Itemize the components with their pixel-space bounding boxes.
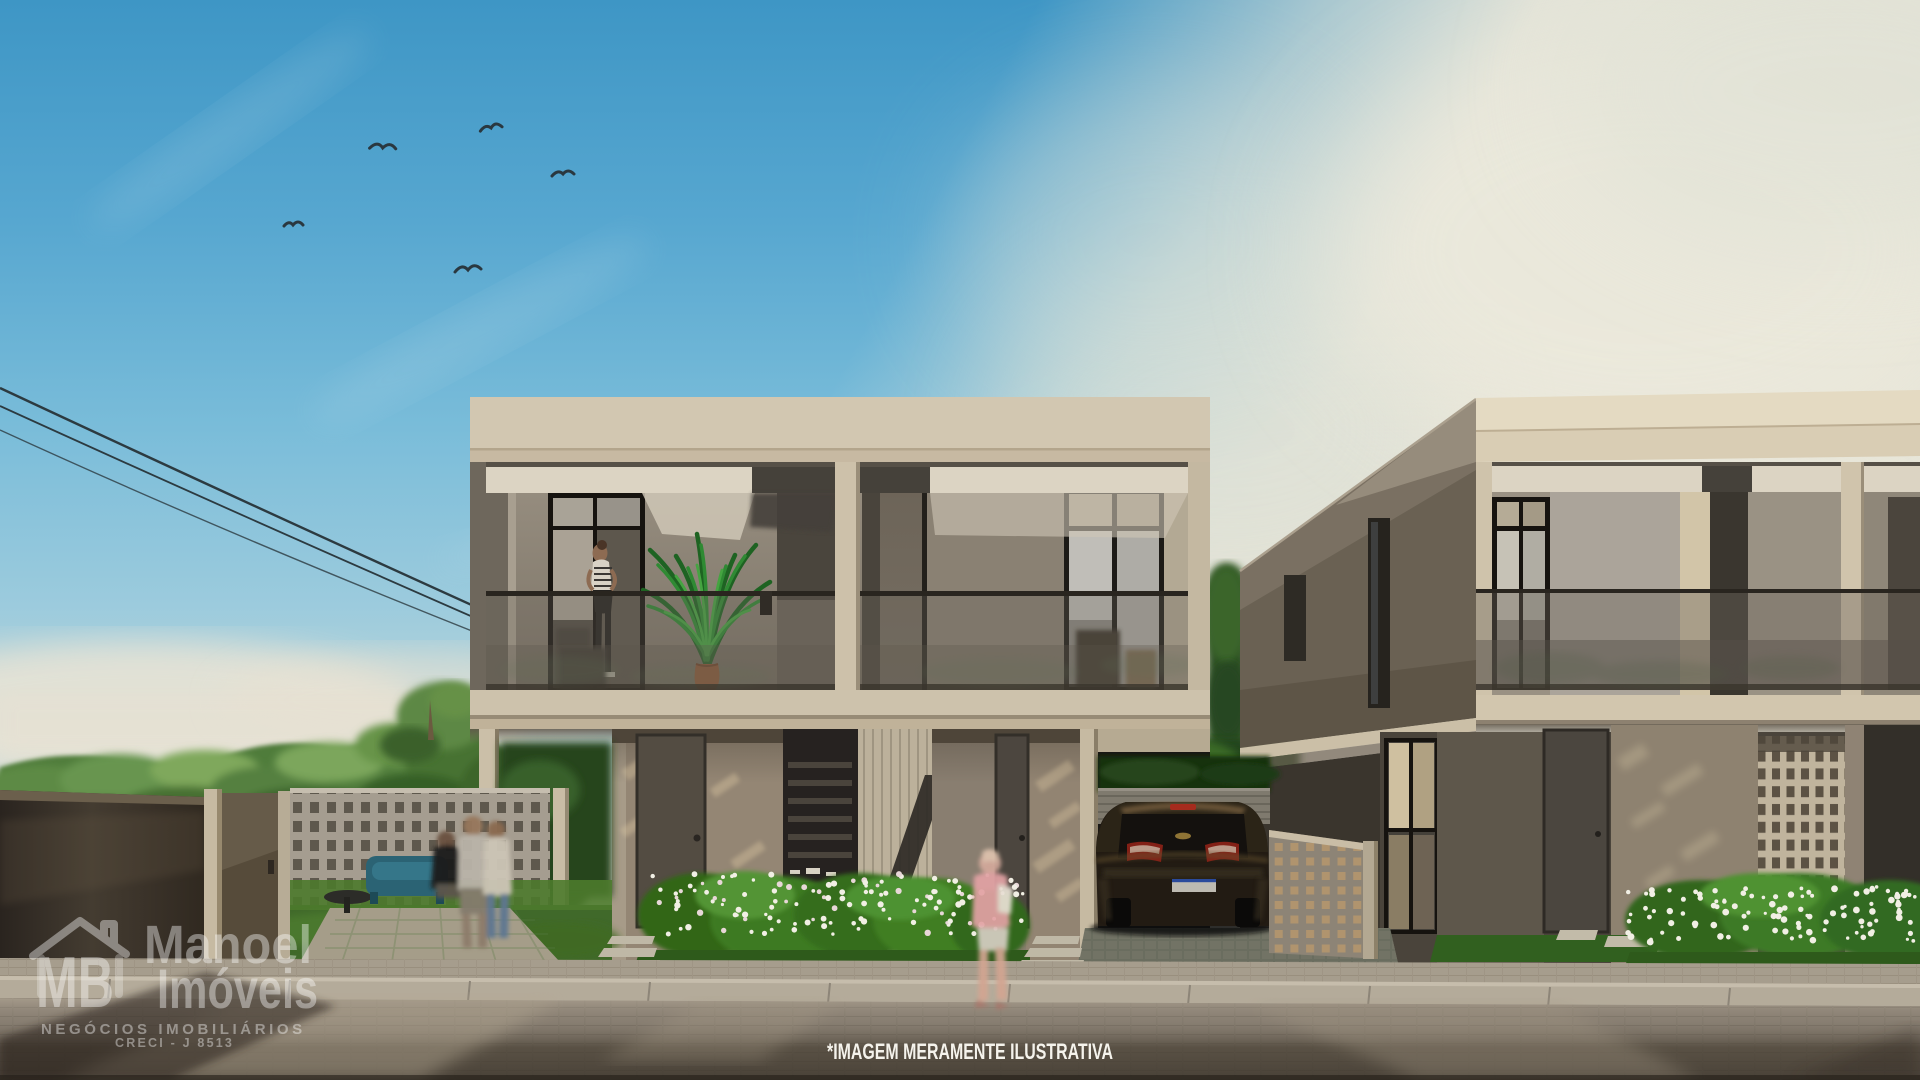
svg-text:*IMAGEM MERAMENTE ILUSTRATIVA: *IMAGEM MERAMENTE ILUSTRATIVA — [827, 1039, 1113, 1064]
svg-text:Imóveis: Imóveis — [157, 957, 318, 1020]
svg-text:MB: MB — [36, 943, 114, 1023]
svg-text:CRECI - J 8513: CRECI - J 8513 — [115, 1036, 234, 1050]
